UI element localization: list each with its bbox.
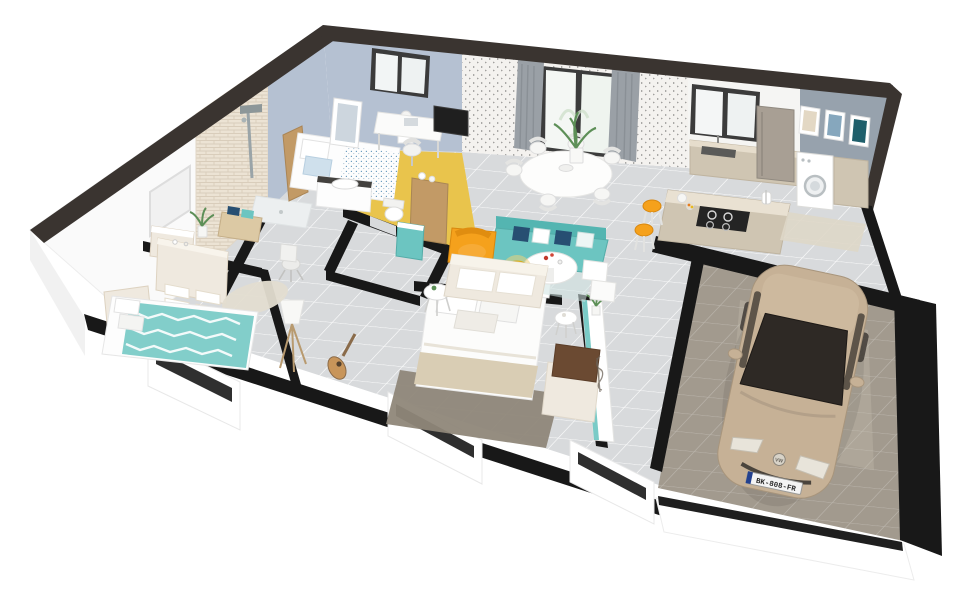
cup — [558, 260, 562, 264]
wc-teal-vanity — [396, 222, 424, 260]
foot-chest — [316, 176, 372, 212]
frame-art-teal — [852, 119, 867, 143]
cushion — [576, 232, 594, 248]
red-flowers — [550, 253, 554, 257]
shower-drain — [279, 210, 283, 214]
vase — [419, 173, 426, 180]
desk-item — [404, 118, 418, 126]
kitchen-window — [690, 84, 760, 142]
laundry-cabinet — [834, 157, 868, 208]
pillow — [118, 314, 144, 331]
tv-icon — [434, 106, 468, 136]
washing-machine-icon — [797, 152, 833, 210]
leaning-mirror — [330, 98, 362, 148]
seat-cushion — [456, 268, 496, 292]
navy-cushion — [512, 226, 530, 242]
master-window — [370, 48, 430, 98]
decor-bottle — [173, 240, 177, 244]
navy-cushion — [554, 230, 572, 246]
floorplan-svg: VW BK-808-FR — [0, 0, 960, 615]
garage-right-wall — [894, 294, 942, 556]
paper-towel-icon — [762, 190, 771, 204]
pillow — [114, 298, 140, 315]
floorplan-render: VW BK-808-FR — [0, 0, 960, 615]
leaf-cushion — [532, 228, 550, 244]
seat-cushion — [496, 272, 536, 296]
brown-cushion — [552, 344, 600, 382]
fridge-icon — [757, 106, 794, 182]
frame-art-beige — [802, 110, 817, 132]
tray — [562, 313, 566, 317]
mini-plant — [432, 286, 437, 291]
decor-bottle — [184, 242, 188, 246]
table-bowl — [559, 165, 573, 172]
round-tray — [332, 179, 358, 189]
red-flowers — [544, 256, 548, 260]
frame-art-blue — [827, 114, 842, 137]
vase — [429, 176, 435, 182]
pillow-blue — [303, 156, 332, 178]
plate — [678, 194, 687, 203]
